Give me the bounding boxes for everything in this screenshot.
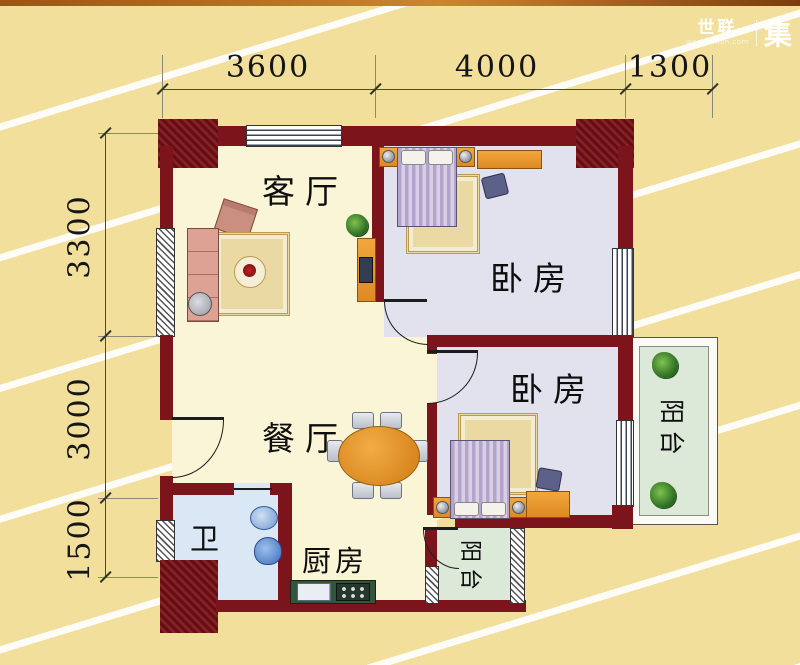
brand-block: 世联 worldunion.com (686, 20, 749, 46)
label-balcony-bottom: 阳台 (456, 540, 488, 596)
dining-table (338, 426, 420, 486)
wall-between-bedrooms (427, 335, 633, 347)
label-balcony-side: 阳台 (655, 399, 691, 461)
lamp (436, 501, 449, 514)
window-balcony-left (425, 566, 439, 604)
brand-divider (756, 20, 757, 46)
dim-left-1: 3300 (63, 187, 98, 287)
dim-top-2: 4000 (447, 50, 547, 85)
tv-set (359, 257, 373, 283)
window-balcony-door (616, 420, 634, 507)
wall-right-2 (618, 335, 633, 420)
pillow (428, 150, 453, 165)
label-kitchen: 厨房 (302, 538, 368, 580)
pillow (401, 150, 426, 165)
window-living-top (246, 125, 342, 147)
extension-line (98, 336, 158, 337)
window-bathroom (156, 520, 175, 562)
label-bathroom: 卫 (190, 516, 223, 558)
lamp (459, 150, 472, 163)
label-living: 客厅 (262, 165, 348, 213)
wall-top (160, 126, 632, 146)
dim-top-1: 3600 (218, 50, 318, 85)
extension-line (98, 498, 158, 499)
dresser-top (477, 150, 542, 169)
floorplan-canvas: 世联 worldunion.com 集 (0, 0, 800, 665)
brand-logo: 世联 worldunion.com 集 (686, 12, 792, 54)
balcony-plant-top (652, 352, 678, 378)
pier-bottom-left (160, 560, 218, 633)
bathroom-sink (250, 506, 278, 530)
top-accent-bar (0, 0, 800, 6)
brand-url: worldunion.com (686, 39, 749, 46)
brand-name: 世联 (686, 20, 749, 37)
lamp (512, 501, 525, 514)
wall-left-1 (160, 146, 173, 230)
dim-left-2: 3000 (63, 369, 98, 469)
label-dining: 餐厅 (262, 412, 348, 460)
extension-line (98, 577, 158, 578)
dimension-line-left (105, 133, 106, 577)
kitchen-sink (297, 583, 331, 601)
wall-left-2 (160, 335, 173, 420)
wall-right-1 (618, 146, 633, 248)
toilet (254, 537, 282, 565)
label-bedroom-bottom: 卧房 (510, 363, 596, 411)
chair-bedroom-bottom (535, 467, 562, 492)
brand-mark: 集 (764, 13, 792, 53)
wall-bathroom-top-a (160, 483, 234, 495)
window-balcony-right (510, 528, 525, 604)
door-bathroom (234, 488, 272, 490)
dimension-line-top (162, 89, 712, 90)
dim-top-3: 1300 (620, 50, 720, 85)
label-bedroom-top: 卧房 (490, 252, 576, 300)
window-living-left (156, 228, 175, 337)
dresser-bottom (526, 491, 570, 518)
kitchen-stove (336, 583, 370, 601)
living-plant (346, 214, 368, 236)
pillow (454, 502, 479, 516)
lamp (382, 150, 395, 163)
balcony-plant-bottom (650, 482, 676, 508)
dim-left-3: 1500 (63, 490, 98, 590)
extension-line (98, 133, 158, 134)
pillow (481, 502, 506, 516)
table-flowers (243, 264, 256, 277)
window-bedroom-top (612, 248, 634, 337)
side-table (188, 292, 212, 316)
